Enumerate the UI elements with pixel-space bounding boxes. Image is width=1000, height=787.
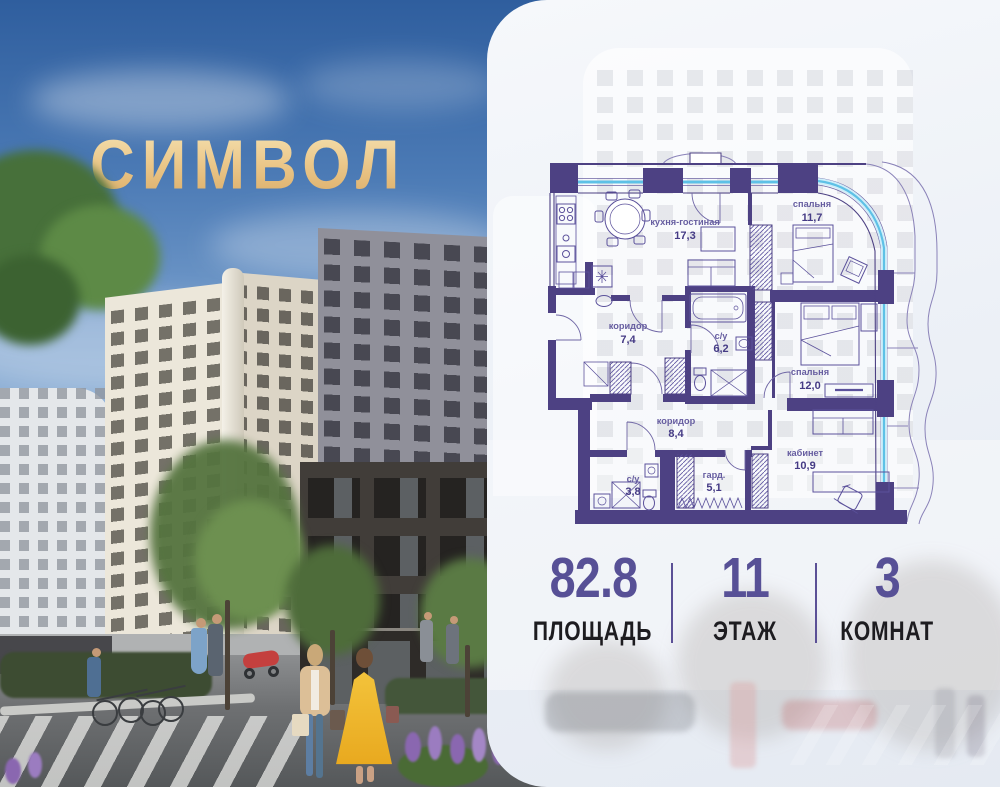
svg-text:коридор: коридор bbox=[657, 416, 696, 426]
building-render-photo: СИМВОЛ bbox=[0, 0, 565, 787]
room-label-bathroom-1: с/у 6,2 bbox=[713, 331, 728, 355]
svg-text:кабинет: кабинет bbox=[787, 448, 824, 458]
svg-text:17,3: 17,3 bbox=[674, 230, 695, 242]
room-label-wardrobe: гард. 5,1 bbox=[703, 470, 726, 494]
listing-card: СИМВОЛ bbox=[0, 0, 1000, 787]
stat-area-value: 82.8 bbox=[549, 550, 637, 607]
room-label-bedroom-1: спальня 11,7 bbox=[793, 199, 831, 224]
ghost-car bbox=[545, 692, 695, 732]
room-label-bedroom-2: спальня 12,0 bbox=[791, 367, 829, 392]
apartment-info-panel: кухня-гостиная 17,3 спальня 11,7 коридор… bbox=[487, 0, 1000, 787]
floorplan: кухня-гостиная 17,3 спальня 11,7 коридор… bbox=[548, 148, 938, 528]
building-left-tower bbox=[0, 388, 112, 668]
svg-text:с/у: с/у bbox=[715, 331, 729, 341]
tree-trunk bbox=[465, 645, 470, 717]
svg-text:спальня: спальня bbox=[793, 199, 831, 209]
svg-text:6,2: 6,2 bbox=[713, 343, 728, 355]
balcony-duct bbox=[690, 153, 721, 164]
ghost-pedestrian bbox=[730, 682, 756, 768]
svg-text:спальня: спальня bbox=[791, 367, 829, 377]
room-label-hall-2: коридор 8,4 bbox=[657, 416, 696, 440]
room-label-bathroom-2: с/у 3,8 bbox=[625, 474, 640, 498]
svg-text:11,7: 11,7 bbox=[802, 212, 823, 224]
svg-text:кухня-гостиная: кухня-гостиная bbox=[650, 217, 719, 227]
svg-text:8,4: 8,4 bbox=[668, 428, 684, 440]
hedge bbox=[0, 652, 212, 698]
svg-text:коридор: коридор bbox=[609, 321, 648, 331]
tree-trunk bbox=[225, 600, 230, 710]
tree-trunk bbox=[330, 630, 335, 705]
stat-rooms-value: 3 bbox=[874, 550, 899, 607]
svg-text:гард.: гард. bbox=[703, 470, 726, 480]
stat-floor: 11 ЭТАЖ bbox=[677, 550, 813, 647]
stat-rooms-label: КОМНАТ bbox=[840, 616, 934, 647]
stat-rooms: 3 КОМНАТ bbox=[817, 550, 957, 647]
brand-logo: СИМВОЛ bbox=[90, 126, 450, 206]
svg-text:с/у: с/у bbox=[627, 474, 641, 484]
room-label-kitchen-living: кухня-гостиная 17,3 bbox=[650, 217, 719, 242]
apartment-stats: 82.8 ПЛОЩАДЬ 11 ЭТАЖ 3 КОМНАТ bbox=[487, 550, 1000, 650]
room-label-hall-1: коридор 7,4 bbox=[609, 321, 648, 346]
stat-area-label: ПЛОЩАДЬ bbox=[533, 616, 652, 647]
svg-text:3,8: 3,8 bbox=[625, 486, 640, 498]
svg-text:5,1: 5,1 bbox=[706, 482, 721, 494]
room-label-study: кабинет 10,9 bbox=[787, 448, 824, 472]
cloud bbox=[300, 60, 500, 110]
stat-floor-value: 11 bbox=[721, 550, 769, 607]
stat-area: 82.8 ПЛОЩАДЬ bbox=[513, 550, 673, 647]
svg-text:12,0: 12,0 bbox=[799, 380, 820, 392]
ghost-crosswalk bbox=[790, 705, 1000, 765]
cloud bbox=[30, 70, 290, 130]
stat-floor-label: ЭТАЖ bbox=[713, 616, 777, 647]
crosswalk bbox=[0, 716, 313, 787]
svg-text:7,4: 7,4 bbox=[620, 334, 636, 346]
svg-text:10,9: 10,9 bbox=[794, 460, 815, 472]
stats-divider bbox=[671, 563, 673, 643]
